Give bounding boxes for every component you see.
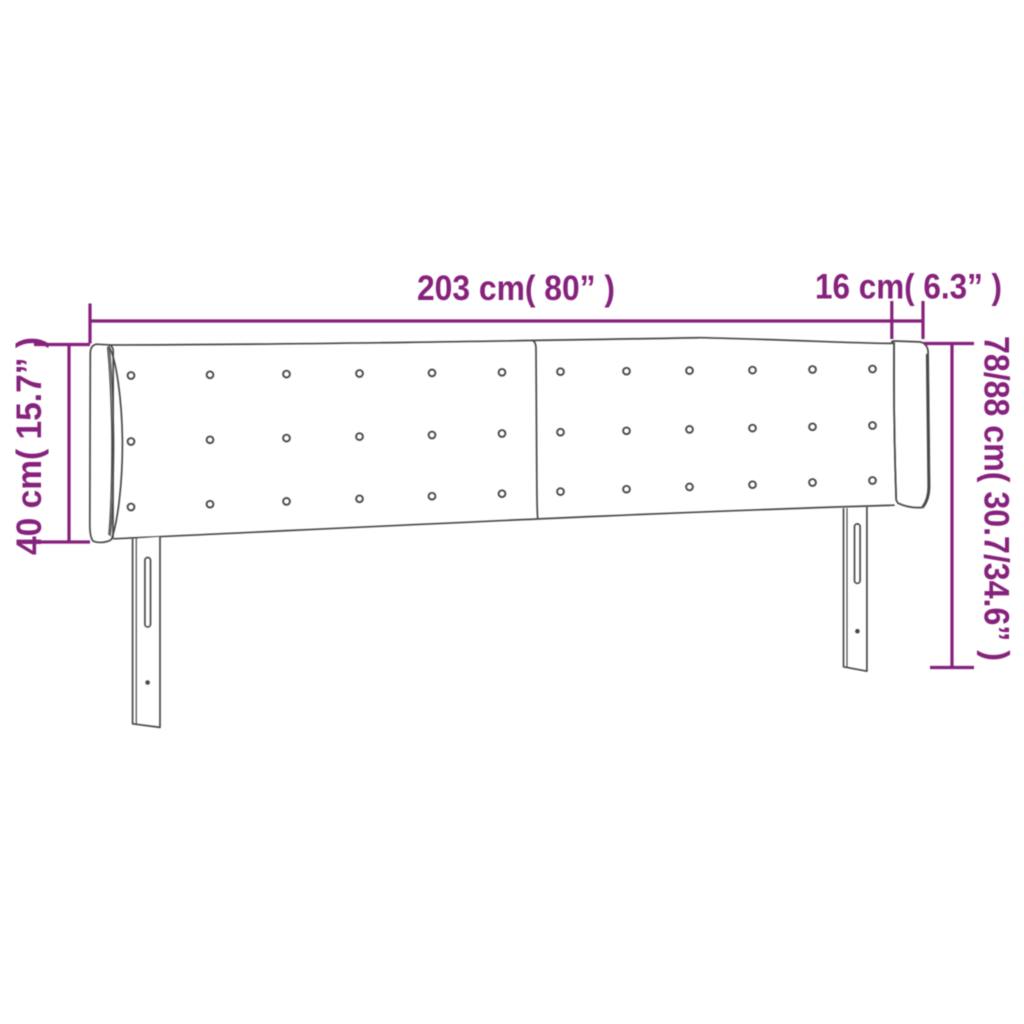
svg-text:203 cm( 80” ): 203 cm( 80” ) xyxy=(417,269,615,308)
svg-text:78/88 cm( 30.7/34.6” ): 78/88 cm( 30.7/34.6” ) xyxy=(977,336,1016,661)
svg-text:16 cm( 6.3” ): 16 cm( 6.3” ) xyxy=(815,268,1002,307)
svg-text:40 cm( 15.7” ): 40 cm( 15.7” ) xyxy=(10,337,49,555)
